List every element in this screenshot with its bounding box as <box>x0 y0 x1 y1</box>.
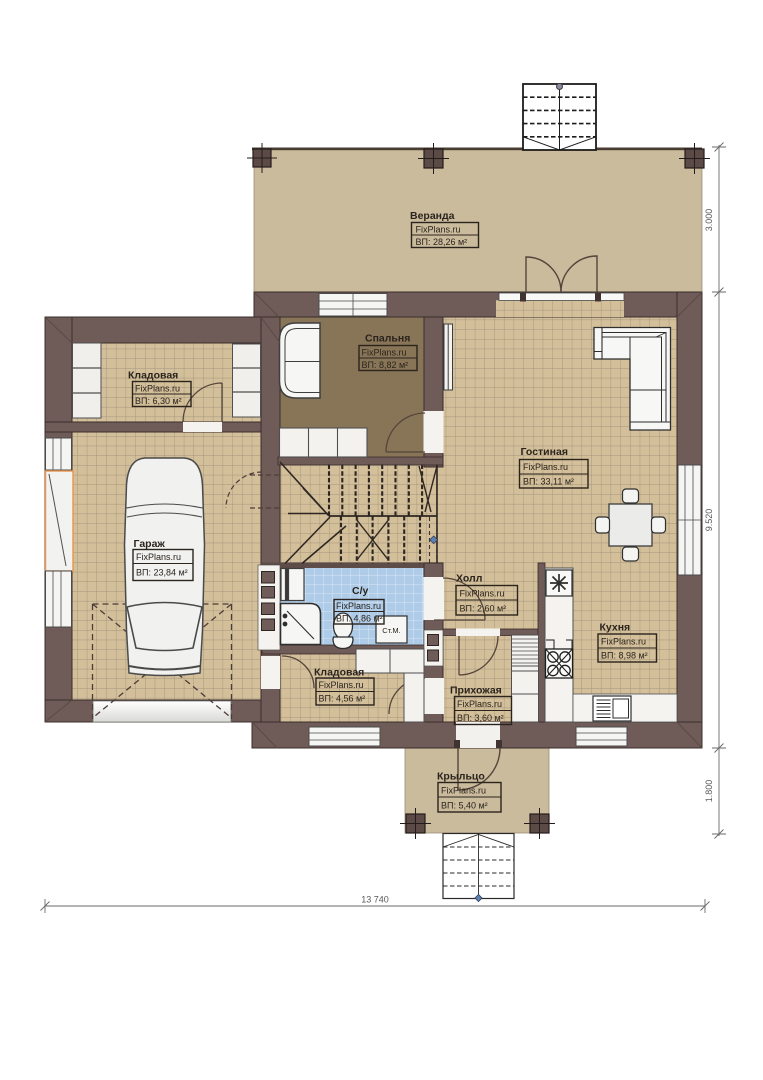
svg-text:FixPlans.ru: FixPlans.ru <box>457 699 502 709</box>
svg-text:FixPlans.ru: FixPlans.ru <box>336 601 381 611</box>
svg-text:FixPlans.ru: FixPlans.ru <box>416 225 461 235</box>
svg-text:Крыльцо: Крыльцо <box>437 771 485 783</box>
svg-text:FixPlans.ru: FixPlans.ru <box>601 637 646 647</box>
svg-text:ВП: 2,60 м²: ВП: 2,60 м² <box>460 604 507 614</box>
svg-text:FixPlans.ru: FixPlans.ru <box>136 552 181 562</box>
svg-text:ВП: 28,26 м²: ВП: 28,26 м² <box>416 237 468 247</box>
svg-text:FixPlans.ru: FixPlans.ru <box>523 462 568 472</box>
svg-text:3.000: 3.000 <box>704 209 714 232</box>
svg-text:С/у: С/у <box>352 585 369 597</box>
svg-text:FixPlans.ru: FixPlans.ru <box>460 589 505 599</box>
svg-text:Гараж: Гараж <box>134 538 166 550</box>
svg-text:Кладовая: Кладовая <box>314 667 364 679</box>
svg-text:ВП: 23,84 м²: ВП: 23,84 м² <box>136 568 188 578</box>
svg-text:Спальня: Спальня <box>365 333 410 345</box>
svg-text:ВП: 8,98 м²: ВП: 8,98 м² <box>601 651 648 661</box>
svg-text:FixPlans.ru: FixPlans.ru <box>441 786 486 796</box>
svg-text:ВП: 4,86 м²: ВП: 4,86 м² <box>336 614 383 624</box>
svg-text:Веранда: Веранда <box>410 210 455 222</box>
svg-text:ВП: 33,11 м²: ВП: 33,11 м² <box>523 477 574 487</box>
svg-text:ВП: 5,40 м²: ВП: 5,40 м² <box>441 801 488 811</box>
svg-text:FixPlans.ru: FixPlans.ru <box>319 680 364 690</box>
svg-text:1.800: 1.800 <box>704 780 714 803</box>
svg-text:FixPlans.ru: FixPlans.ru <box>135 384 180 394</box>
svg-text:ВП: 3,60 м²: ВП: 3,60 м² <box>457 713 504 723</box>
svg-text:Ст.М.: Ст.М. <box>382 626 400 635</box>
svg-text:FixPlans.ru: FixPlans.ru <box>362 348 407 358</box>
svg-text:Кухня: Кухня <box>600 622 631 634</box>
svg-text:ВП: 8,82 м²: ВП: 8,82 м² <box>362 360 409 370</box>
svg-text:ВП: 4,56 м²: ВП: 4,56 м² <box>319 694 366 704</box>
svg-text:13 740: 13 740 <box>361 895 389 905</box>
svg-text:Гостиная: Гостиная <box>521 446 568 458</box>
svg-text:ВП: 6,30 м²: ВП: 6,30 м² <box>135 396 182 406</box>
svg-text:Прихожая: Прихожая <box>450 685 502 697</box>
svg-text:Кладовая: Кладовая <box>128 370 178 382</box>
svg-text:Холл: Холл <box>456 573 482 585</box>
svg-text:9.520: 9.520 <box>704 509 714 532</box>
